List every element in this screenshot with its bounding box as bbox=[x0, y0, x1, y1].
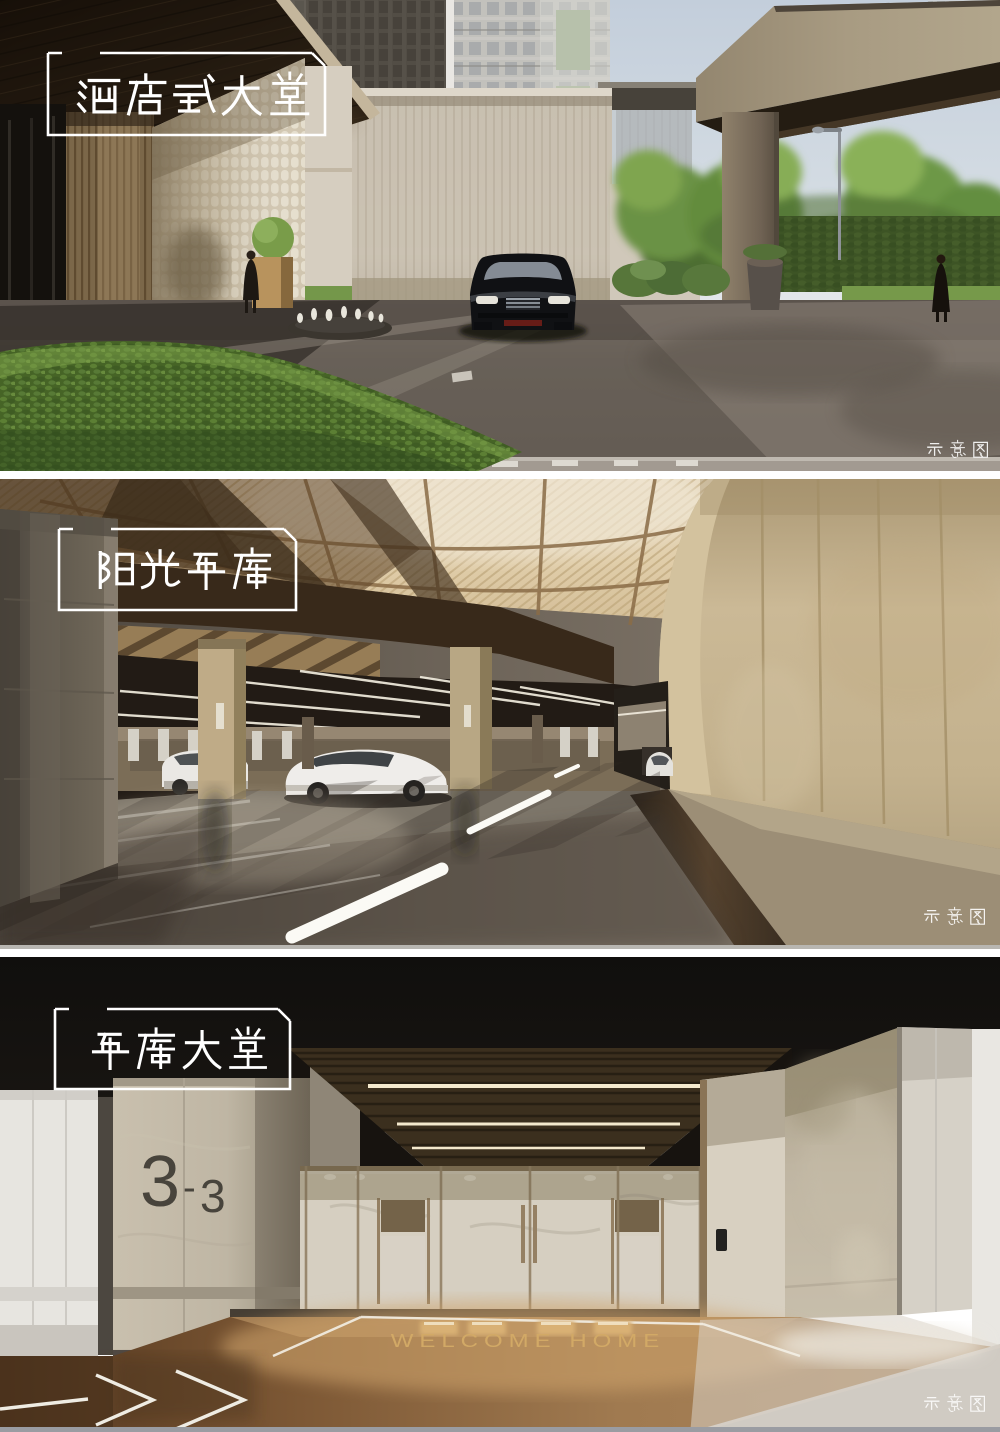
svg-text:3: 3 bbox=[200, 1170, 226, 1222]
svg-text:-: - bbox=[183, 1167, 196, 1209]
svg-text:WELCOME HOME: WELCOME HOME bbox=[391, 1330, 666, 1351]
svg-text:3: 3 bbox=[140, 1142, 180, 1222]
